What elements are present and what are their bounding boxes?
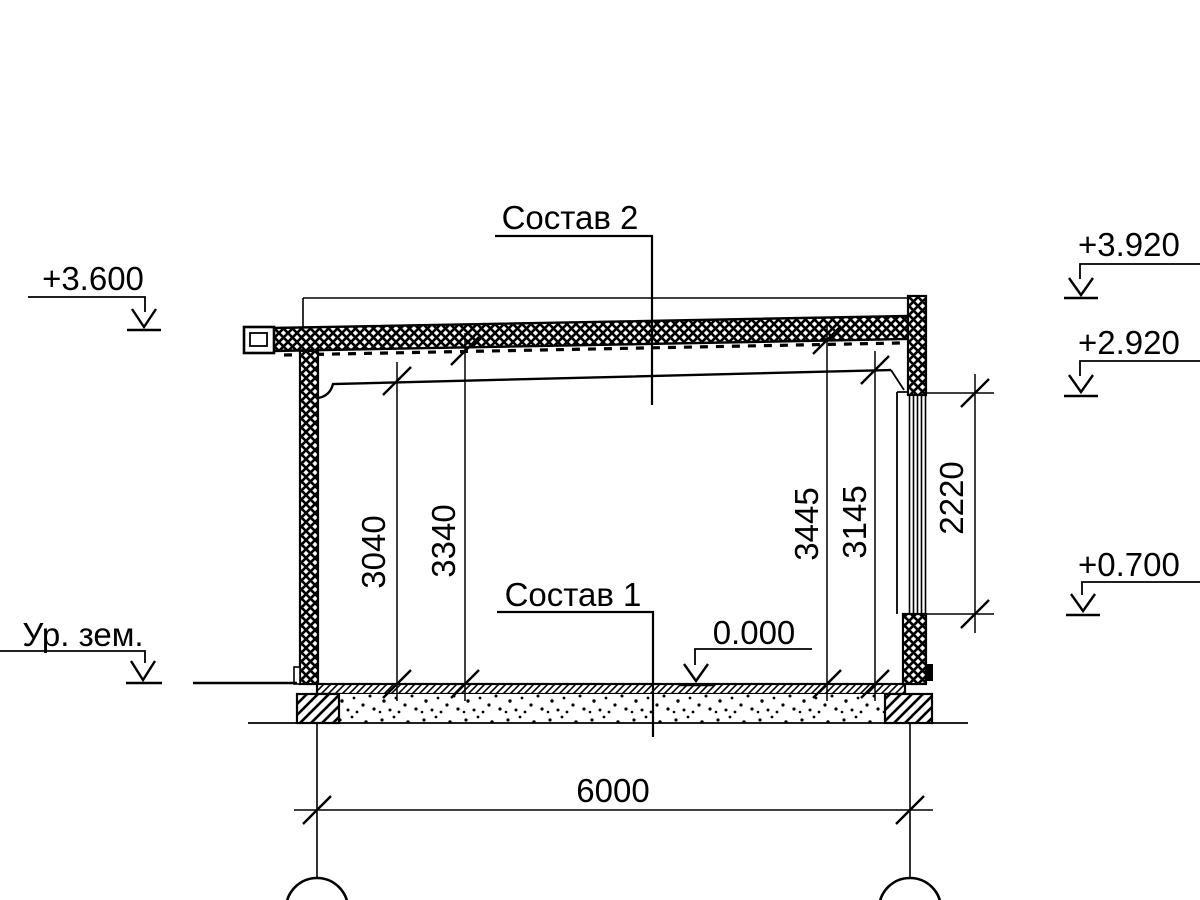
- elevation-window-sill-arrow: [1071, 594, 1095, 611]
- dimension-axis-span: 6000: [286, 723, 941, 900]
- elevation-parapet-top-value: +3.920: [1078, 226, 1180, 263]
- right-wall-below-sill: [903, 614, 926, 684]
- elevation-finished-floor: 0.000: [680, 614, 812, 685]
- dimension-structure-height-left-value: 3340: [425, 504, 462, 577]
- elevation-window-sill-shelf: [1082, 582, 1200, 595]
- elevation-window-sill-value: +0.700: [1078, 546, 1180, 583]
- right-wall-ledge: [926, 664, 933, 681]
- foundation-right: [885, 694, 932, 723]
- dimension-clear-height-right: 3145: [836, 351, 889, 701]
- left-wall-plinth: [294, 667, 300, 684]
- leader-roof-assembly: Состав 2: [495, 199, 652, 405]
- gravel-bed: [339, 694, 885, 723]
- dimension-clear-height-right-value: 3145: [836, 485, 873, 558]
- elevation-roof-edge-left: +3.600: [28, 260, 161, 330]
- dimension-structure-height-right-value: 3445: [788, 487, 825, 560]
- elevation-window-head-arrow: [1069, 375, 1093, 392]
- axis-bubble-right: [879, 878, 941, 900]
- window-reveal: [891, 370, 908, 614]
- elevation-window-head-value: +2.920: [1078, 324, 1180, 361]
- dimension-axis-span-value: 6000: [576, 772, 649, 809]
- elevation-finished-floor-value: 0.000: [713, 614, 796, 651]
- left-wall: [300, 351, 318, 684]
- axis-bubble-left: [286, 878, 348, 900]
- floor-slab: [317, 684, 905, 694]
- dimension-structure-height-left: 3340: [425, 333, 479, 701]
- elevation-ground-level-arrow: [131, 661, 155, 680]
- elevation-ground-level-label: Ур. зем.: [22, 616, 143, 653]
- elevation-window-head: +2.920: [1064, 324, 1200, 396]
- elevation-parapet-top: +3.920: [1064, 226, 1200, 298]
- dimension-clear-height-left: 3040: [355, 362, 411, 701]
- right-parapet: [908, 296, 926, 395]
- elevation-parapet-top-arrow: [1069, 278, 1093, 295]
- dimension-window-opening: 2220: [903, 374, 994, 633]
- building-section-drawing: Состав 2 Состав 1 +3.600 Ур. зем. +3.920…: [0, 0, 1200, 900]
- dimension-window-opening-value: 2220: [933, 461, 970, 534]
- dimension-clear-height-left-value: 3040: [355, 515, 392, 588]
- label-roof-assembly: Состав 2: [502, 199, 639, 236]
- eave-fascia-inner: [250, 333, 267, 346]
- elevation-window-head-shelf: [1080, 361, 1200, 376]
- elevation-ground-level: Ур. зем.: [0, 616, 162, 683]
- label-floor-assembly: Состав 1: [505, 576, 642, 613]
- elevation-finished-floor-shelf: [695, 649, 812, 665]
- drawing-sheet: Состав 2 Состав 1 +3.600 Ур. зем. +3.920…: [0, 0, 1200, 900]
- elevation-roof-edge-left-value: +3.600: [42, 260, 144, 297]
- window-glazing: [910, 395, 926, 614]
- elevation-window-sill: +0.700: [1066, 546, 1200, 615]
- elevation-finished-floor-arrow: [684, 664, 708, 681]
- elevation-parapet-top-shelf: [1080, 264, 1200, 279]
- foundation-left: [297, 694, 339, 723]
- elevation-roof-edge-left-shelf: [28, 297, 145, 312]
- dimension-structure-height-right: 3445: [788, 321, 841, 701]
- elevation-roof-edge-left-arrow: [132, 309, 156, 327]
